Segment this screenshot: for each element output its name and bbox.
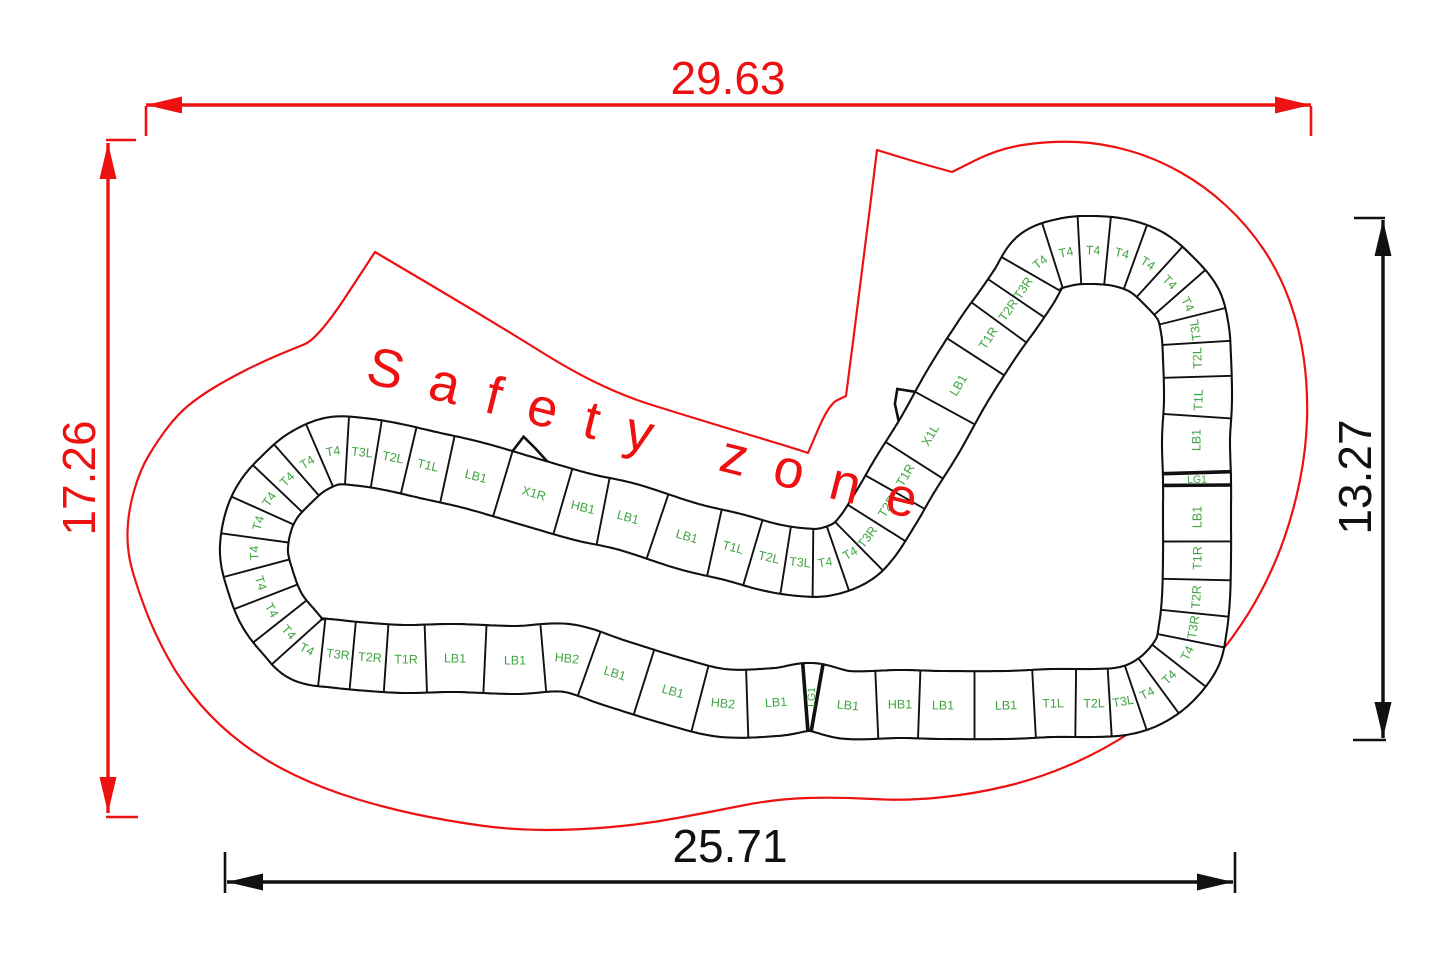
segment-label: LB1 bbox=[995, 698, 1018, 712]
dimension-left-value: 17.26 bbox=[53, 420, 105, 535]
segment-label: LB1 bbox=[764, 695, 787, 711]
segment-label: LB1 bbox=[836, 697, 860, 713]
segment-label: T3L bbox=[351, 444, 374, 460]
dimension-top-value: 29.63 bbox=[670, 52, 785, 104]
segment-label: T2L bbox=[1083, 696, 1105, 710]
segment-label: T1R bbox=[394, 652, 418, 666]
dimension-arrow bbox=[146, 97, 182, 114]
track-drawing-page: T3LT2LT1LLB1X1RHB1LB1LB1T1LT2LT3LT4T4T3R… bbox=[0, 0, 1448, 976]
segment-label: LG1 bbox=[806, 687, 818, 707]
segment-label: T2R bbox=[358, 650, 383, 666]
segment-label: T3R bbox=[325, 646, 350, 663]
segment-label: T4 bbox=[1058, 244, 1075, 261]
segment-label: T4 bbox=[325, 443, 342, 459]
dimension-right-value: 13.27 bbox=[1329, 419, 1381, 534]
segment-label: T2R bbox=[1189, 585, 1204, 609]
segment-label: LB1 bbox=[504, 653, 526, 667]
dimension-arrow bbox=[1197, 874, 1233, 891]
segment-label: T1R bbox=[1190, 546, 1204, 570]
segment-label: T4 bbox=[817, 554, 834, 570]
segment-label: LB1 bbox=[444, 651, 466, 665]
segment-divider bbox=[813, 529, 814, 597]
segment-label: T1L bbox=[1191, 389, 1205, 411]
dimension-arrow bbox=[1275, 97, 1311, 114]
dimension-arrow bbox=[100, 777, 117, 813]
segment-label: T4 bbox=[1086, 243, 1101, 257]
segment-label: HB1 bbox=[888, 697, 912, 711]
dimension-arrow bbox=[1375, 220, 1392, 256]
segment-label: T3L bbox=[789, 555, 812, 571]
segment-label: LB1 bbox=[1191, 506, 1205, 528]
dimension-arrow bbox=[1375, 702, 1392, 738]
segment-label: T4 bbox=[247, 545, 262, 560]
dimension-arrow bbox=[100, 143, 117, 179]
segment-label: T1L bbox=[1042, 696, 1064, 711]
segment-label: LG1 bbox=[1187, 474, 1207, 486]
segment-label: HB2 bbox=[554, 650, 580, 667]
dimension-arrow bbox=[227, 874, 263, 891]
segment-label: T2L bbox=[1190, 347, 1205, 369]
segment-divider bbox=[1075, 669, 1076, 737]
segment-label: LB1 bbox=[1189, 429, 1203, 451]
track-layout-drawing: T3LT2LT1LLB1X1RHB1LB1LB1T1LT2LT3LT4T4T3R… bbox=[0, 0, 1448, 976]
segment-label: HB2 bbox=[710, 695, 736, 711]
dimension-bottom-value: 25.71 bbox=[672, 820, 787, 872]
segment-label: LB1 bbox=[932, 698, 954, 712]
